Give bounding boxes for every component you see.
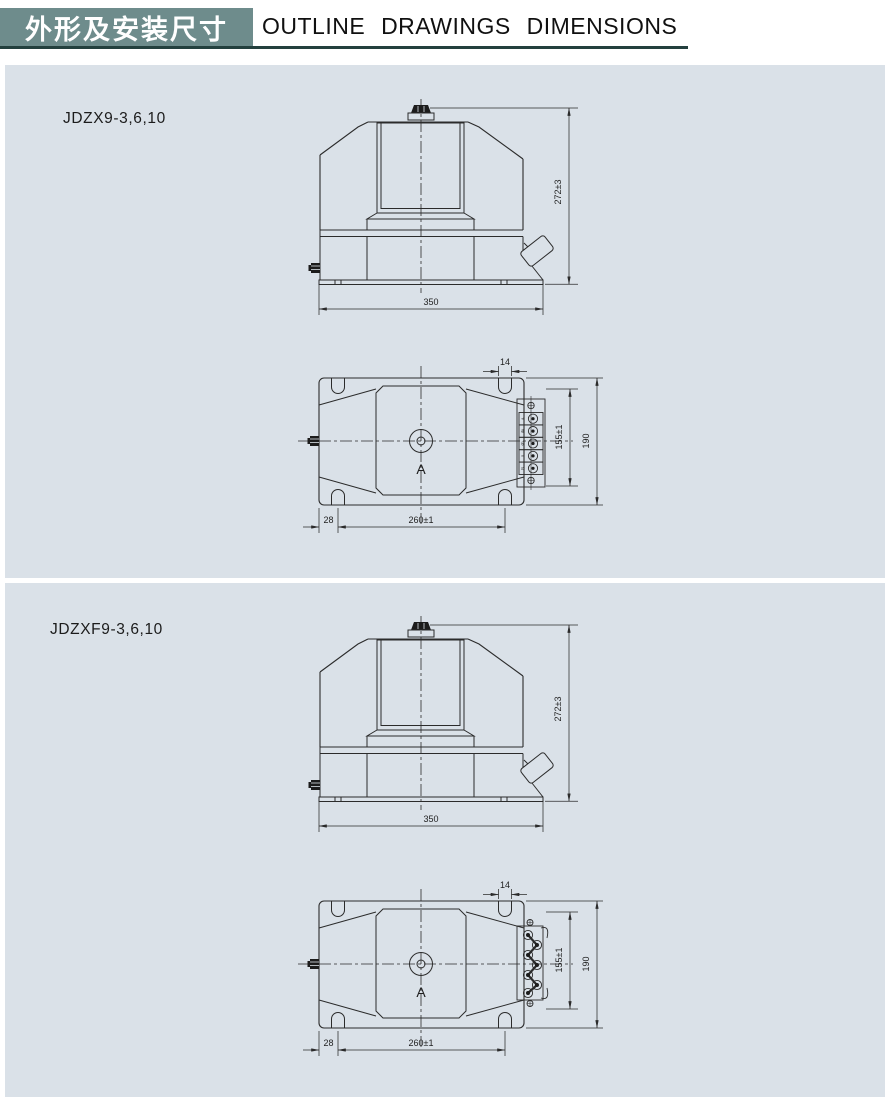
dim-base-width-label: 350	[423, 814, 438, 824]
nameplate-tag	[520, 235, 555, 268]
base-plate	[319, 280, 543, 285]
terminal-label: a	[521, 418, 525, 420]
dim-slot-width-label: 14	[500, 357, 510, 367]
dim-slot-width-label: 14	[500, 880, 510, 890]
top-view-jdzxf9: A 14 155±1 190 28 260±1	[290, 879, 610, 1069]
primary-terminal	[408, 105, 434, 120]
model-label-jdzxf9: JDZXF9-3,6,10	[50, 621, 163, 639]
nameplate-tag	[520, 752, 555, 785]
dim-overall-width-label: 190	[581, 956, 591, 971]
mounting-slots	[332, 378, 512, 505]
header-underline	[0, 46, 688, 49]
dim-edge-to-slot-label: 28	[323, 515, 333, 525]
page-title-english: OUTLINE DRAWINGS DIMENSIONS	[262, 13, 677, 40]
dim-slot-pitch-h-label: 260±1	[409, 1038, 434, 1048]
top-view-jdzx9: A a da dn n N 14 155±1 190 28 260±1	[290, 356, 610, 546]
section-mark-label: A	[416, 461, 426, 477]
terminal-label: n	[521, 455, 525, 457]
dim-slot-pitch-h-label: 260±1	[409, 515, 434, 525]
dim-height-label: 272±3	[553, 180, 563, 205]
core-window	[367, 123, 474, 230]
dim-slot-pitch-v-label: 155±1	[554, 948, 564, 973]
ground-terminal	[308, 959, 320, 969]
front-body-outline	[309, 616, 579, 832]
catalog-page: 外形及安装尺寸 OUTLINE DRAWINGS DIMENSIONS JDZX…	[0, 0, 890, 1102]
ground-terminal	[309, 263, 321, 273]
header-accent-box: 外形及安装尺寸	[0, 8, 253, 46]
model-label-jdzx9: JDZX9-3,6,10	[63, 110, 166, 128]
base-plate	[319, 797, 543, 802]
front-view-jdzx9: 272±3 350	[280, 93, 600, 323]
terminal-label: dn	[521, 442, 525, 446]
dim-edge-to-slot-label: 28	[323, 1038, 333, 1048]
dim-slot-pitch-v-label: 155±1	[554, 425, 564, 450]
dim-slot-width	[483, 366, 527, 376]
core-window	[367, 640, 474, 747]
dim-overall-width-label: 190	[581, 433, 591, 448]
section-mark-label: A	[416, 984, 426, 1000]
dim-slot-width	[483, 889, 527, 899]
ground-terminal	[308, 436, 320, 446]
mounting-slots	[332, 901, 512, 1028]
page-title-chinese: 外形及安装尺寸	[25, 8, 228, 47]
ground-terminal	[309, 780, 321, 790]
front-view-jdzxf9: 272±3 350	[280, 610, 600, 840]
primary-terminal	[408, 622, 434, 637]
panel-jdzxf9: JDZXF9-3,6,10	[5, 583, 885, 1097]
secondary-terminal-block	[517, 920, 548, 1007]
terminal-label: da	[521, 429, 525, 433]
front-body-outline	[309, 99, 579, 315]
dim-height-label: 272±3	[553, 697, 563, 722]
panel-jdzx9: JDZX9-3,6,10	[5, 65, 885, 578]
dim-base-width-label: 350	[423, 297, 438, 307]
